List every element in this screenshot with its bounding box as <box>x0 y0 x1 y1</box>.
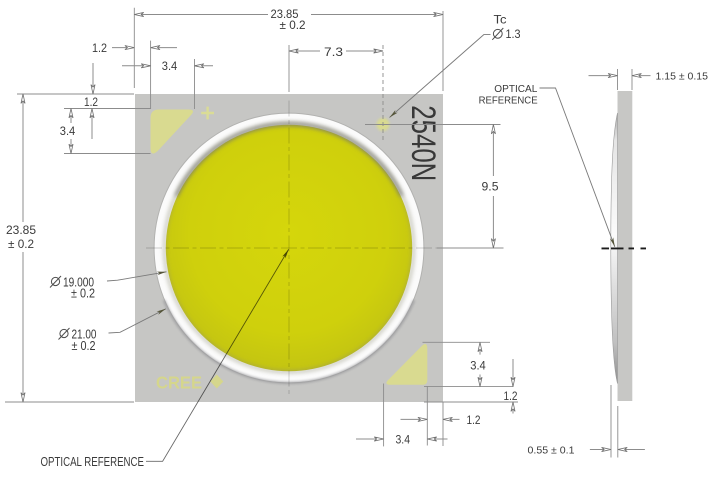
svg-text:3.4: 3.4 <box>396 433 411 447</box>
svg-text:23.85: 23.85 <box>6 223 36 237</box>
svg-text:REFERENCE: REFERENCE <box>479 95 538 107</box>
svg-text:1.2: 1.2 <box>92 41 107 55</box>
svg-text:Tc: Tc <box>494 13 507 27</box>
svg-text:± 0.2: ± 0.2 <box>280 18 306 32</box>
svg-text:3.4: 3.4 <box>470 358 486 372</box>
svg-text:± 0.2: ± 0.2 <box>8 237 34 251</box>
svg-text:± 0.2: ± 0.2 <box>72 339 96 353</box>
svg-text:2540N: 2540N <box>404 105 442 181</box>
svg-text:1.2: 1.2 <box>504 389 518 403</box>
svg-text:1.2: 1.2 <box>84 95 98 109</box>
svg-text:1.15 ± 0.15: 1.15 ± 0.15 <box>656 70 709 82</box>
svg-text:1.2: 1.2 <box>467 413 481 427</box>
svg-text:9.5: 9.5 <box>482 180 499 194</box>
svg-text:OPTICAL REFERENCE: OPTICAL REFERENCE <box>41 455 145 469</box>
svg-text:7.3: 7.3 <box>324 45 343 59</box>
svg-text:OPTICAL: OPTICAL <box>494 83 537 95</box>
svg-text:1.3: 1.3 <box>506 27 521 41</box>
svg-text:CREE: CREE <box>156 373 202 393</box>
svg-text:3.4: 3.4 <box>60 124 76 138</box>
svg-text:± 0.2: ± 0.2 <box>71 287 95 301</box>
svg-text:0.55 ± 0.1: 0.55 ± 0.1 <box>528 445 575 457</box>
svg-text:3.4: 3.4 <box>162 59 178 73</box>
